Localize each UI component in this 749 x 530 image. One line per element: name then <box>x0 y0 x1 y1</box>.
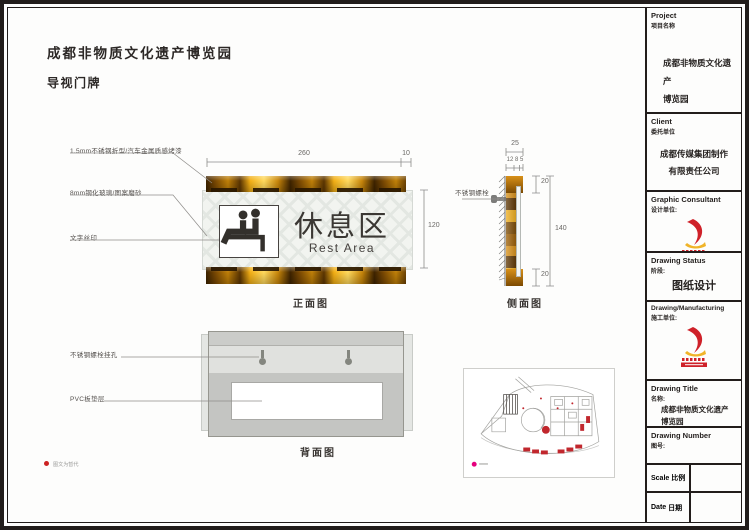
status-label-zh: 阶段: <box>651 266 737 275</box>
dim-front-height: 120 <box>428 222 440 229</box>
front-view-gold-strip-bottom <box>206 267 406 284</box>
annotation-bolt: 不锈钢螺栓 <box>455 187 489 197</box>
consultant-label-zh: 设计单位: <box>651 205 737 214</box>
client-value-line2: 有限责任公司 <box>651 163 737 180</box>
project-value-line1: 成都非物质文化遗产 <box>663 54 737 90</box>
site-plan-drawing <box>464 369 612 475</box>
back-view-panel <box>208 331 404 437</box>
date-label-zh: 日期 <box>668 503 682 513</box>
back-view-right-glass-edge <box>403 334 413 431</box>
titleblock-drawing-number: Drawing Number 图号: <box>647 428 741 465</box>
annotation-tempered-glass: 8mm钢化玻璃/图案磨砂 <box>70 187 142 197</box>
titleblock-status: Drawing Status 阶段: 图纸设计 <box>647 253 741 302</box>
keyhole-slot-icon <box>345 350 352 365</box>
drawing-number-label-en: Drawing Number <box>651 431 737 440</box>
project-label-zh: 项目名称 <box>651 21 737 30</box>
drawing-title-label-en: Drawing Title <box>651 384 737 393</box>
back-view-top-strip <box>209 332 403 346</box>
sign-text-en: Rest Area <box>290 241 394 255</box>
titleblock-scale: Scale 比例 <box>647 465 741 493</box>
dim-side-top: 20 <box>541 178 549 185</box>
drawing-number-label-zh: 图号: <box>651 441 737 450</box>
map-legend-dot <box>472 462 477 467</box>
annotation-hanger-hole: 不锈钢螺栓挂孔 <box>70 349 118 359</box>
title-block: Project 项目名称 成都非物质文化遗产 博览园 Client 委托单位 成… <box>645 8 741 522</box>
manufacturing-label-en: Drawing/Manufacturing <box>651 305 737 312</box>
manufacturing-logo <box>679 326 709 368</box>
scale-label-zh: 比例 <box>671 473 685 483</box>
titleblock-consultant: Graphic Consultant 设计单位: <box>647 192 741 253</box>
dim-side-width: 25 <box>503 140 527 147</box>
date-label-en: Date <box>651 504 666 511</box>
side-view-caption: 侧面图 <box>495 295 555 310</box>
rest-area-seated-people-icon <box>220 206 275 254</box>
pvc-backing-layer <box>231 382 383 420</box>
dim-side-height: 140 <box>555 225 567 232</box>
front-view-caption: 正面图 <box>281 295 341 310</box>
date-value <box>689 493 741 522</box>
side-view-glass-layer <box>516 186 521 277</box>
titleblock-drawing-title: Drawing Title 名称: 成都非物质文化遗产 博览园 <box>647 381 741 428</box>
annotation-silkscreen-text: 文字丝印 <box>70 232 97 242</box>
rest-area-icon-box <box>219 205 279 258</box>
sheet-title: 成都非物质文化遗产博览园 <box>47 42 233 62</box>
dim-front-width: 260 <box>207 150 401 157</box>
consultant-label-en: Graphic Consultant <box>651 195 737 204</box>
client-label-en: Client <box>651 117 737 126</box>
sheet-subtitle: 导视门牌 <box>47 74 101 91</box>
titleblock-project: Project 项目名称 成都非物质文化遗产 博览园 <box>647 8 741 114</box>
scale-label-en: Scale <box>651 475 669 482</box>
status-label-en: Drawing Status <box>651 256 737 265</box>
footnote-red-dot-icon <box>44 461 49 466</box>
annotation-steel-paint: 1.5mm不锈钢折型/汽车金属质感烤漆 <box>70 145 182 155</box>
titleblock-manufacturing: Drawing/Manufacturing 施工单位: <box>647 302 741 381</box>
status-value: 图纸设计 <box>651 277 737 295</box>
bolt-head-icon <box>491 195 497 203</box>
back-view-hanger-band <box>209 346 403 373</box>
consultant-logo <box>679 218 709 253</box>
dim-side-bottom: 20 <box>541 271 549 278</box>
client-value-line1: 成都传媒集团制作 <box>651 146 737 163</box>
drawing-title-value-line2: 博览园 <box>661 416 737 428</box>
titleblock-date: Date 日期 <box>647 493 741 522</box>
keyhole-slot-icon <box>259 350 266 365</box>
sign-text-zh: 休息区 <box>290 203 394 245</box>
site-location-map <box>463 368 615 478</box>
drawing-sheet: 成都非物质文化遗产博览园 导视门牌 1.5mm不锈钢折型/汽车金属质感烤漆 8m… <box>0 0 749 530</box>
client-label-zh: 委托单位 <box>651 127 737 136</box>
back-view-caption: 背面图 <box>288 444 348 459</box>
drawing-title-value-line1: 成都非物质文化遗产 <box>661 404 737 416</box>
footnote-text: 图文为暂代 <box>53 460 79 468</box>
dim-side-layers: 12 8 5 <box>500 157 530 163</box>
scale-value <box>689 465 741 491</box>
titleblock-client: Client 委托单位 成都传媒集团制作 有限责任公司 <box>647 114 741 192</box>
annotation-pvc-layer: PVC板垫层 <box>70 393 105 403</box>
drawing-title-label-zh: 名称: <box>651 394 737 403</box>
front-view-gold-strip-top <box>206 176 406 192</box>
dim-front-edge: 10 <box>394 150 418 157</box>
project-label-en: Project <box>651 11 737 20</box>
project-value-line2: 博览园 <box>663 90 737 108</box>
manufacturing-label-zh: 施工单位: <box>651 313 737 322</box>
